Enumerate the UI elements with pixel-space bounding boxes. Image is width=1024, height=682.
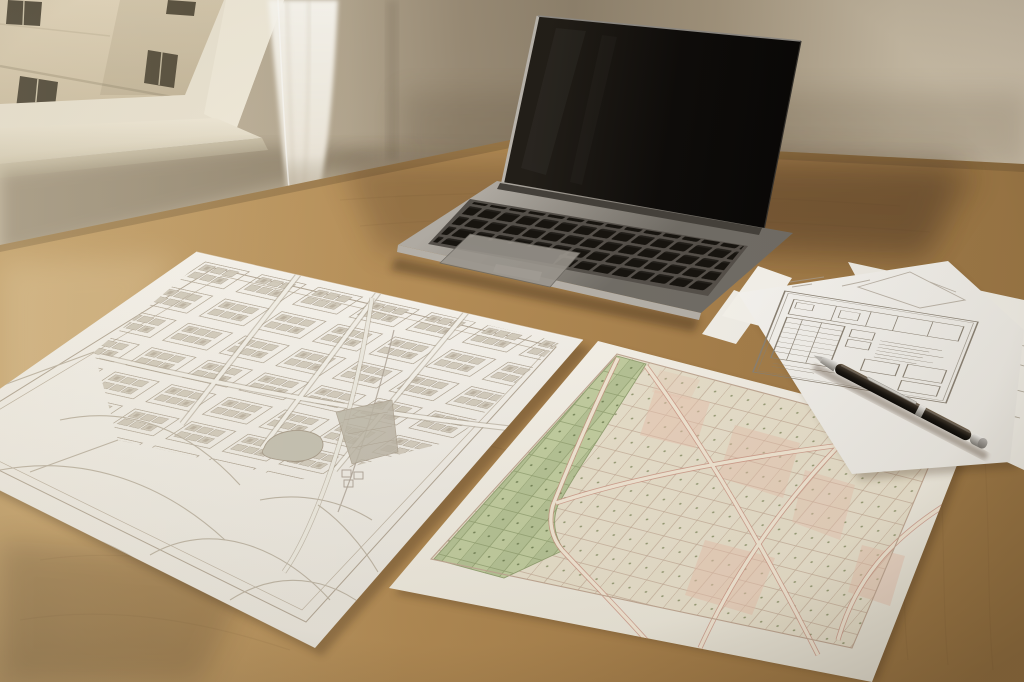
photo-canvas: Photograph of a light wooden desk beside… xyxy=(0,0,1024,682)
vignette xyxy=(0,0,1024,682)
desk-scene-photo: Photograph of a light wooden desk beside… xyxy=(0,0,1024,682)
